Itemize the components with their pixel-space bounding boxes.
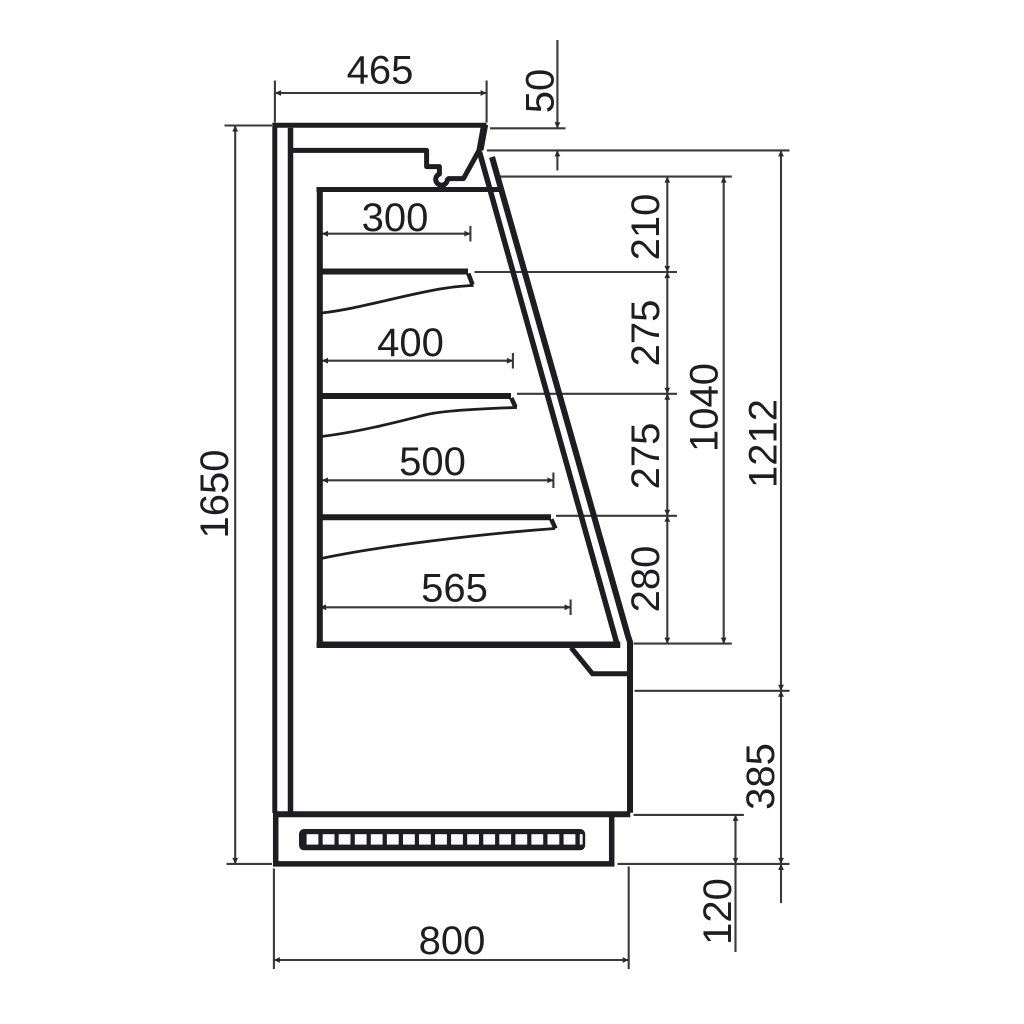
svg-text:120: 120	[696, 878, 740, 945]
svg-text:300: 300	[362, 196, 429, 240]
svg-text:500: 500	[399, 440, 466, 484]
svg-text:800: 800	[419, 919, 486, 963]
svg-text:400: 400	[377, 321, 444, 365]
svg-text:385: 385	[739, 743, 783, 810]
svg-text:280: 280	[624, 546, 668, 613]
svg-text:275: 275	[624, 300, 668, 367]
svg-text:1040: 1040	[683, 363, 727, 452]
svg-text:210: 210	[624, 194, 668, 261]
svg-text:50: 50	[519, 69, 563, 114]
svg-text:1650: 1650	[193, 450, 237, 539]
svg-text:565: 565	[421, 566, 488, 610]
svg-text:465: 465	[347, 49, 414, 93]
svg-text:1212: 1212	[742, 399, 786, 488]
svg-text:275: 275	[624, 423, 668, 490]
